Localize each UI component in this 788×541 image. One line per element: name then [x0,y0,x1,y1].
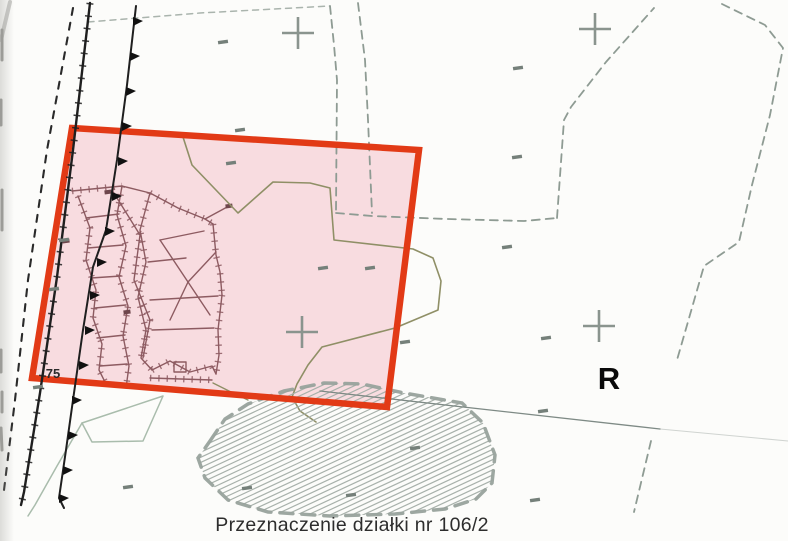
pond-outline [82,396,163,442]
label-R: R [598,361,620,396]
scan-edge-shade [0,0,14,541]
label-75: 75 [46,366,60,381]
map-canvas: R75 [0,0,788,541]
map-document: R75 Przeznaczenie działki nr 106/2 [0,0,788,541]
svg-text:R: R [598,361,620,396]
survey-line [320,391,660,429]
topleft-faint-boundary [88,6,330,22]
svg-text:75: 75 [46,366,60,381]
survey-line-faint [660,429,788,441]
map-caption: Przeznaczenie działki nr 106/2 [215,514,488,537]
